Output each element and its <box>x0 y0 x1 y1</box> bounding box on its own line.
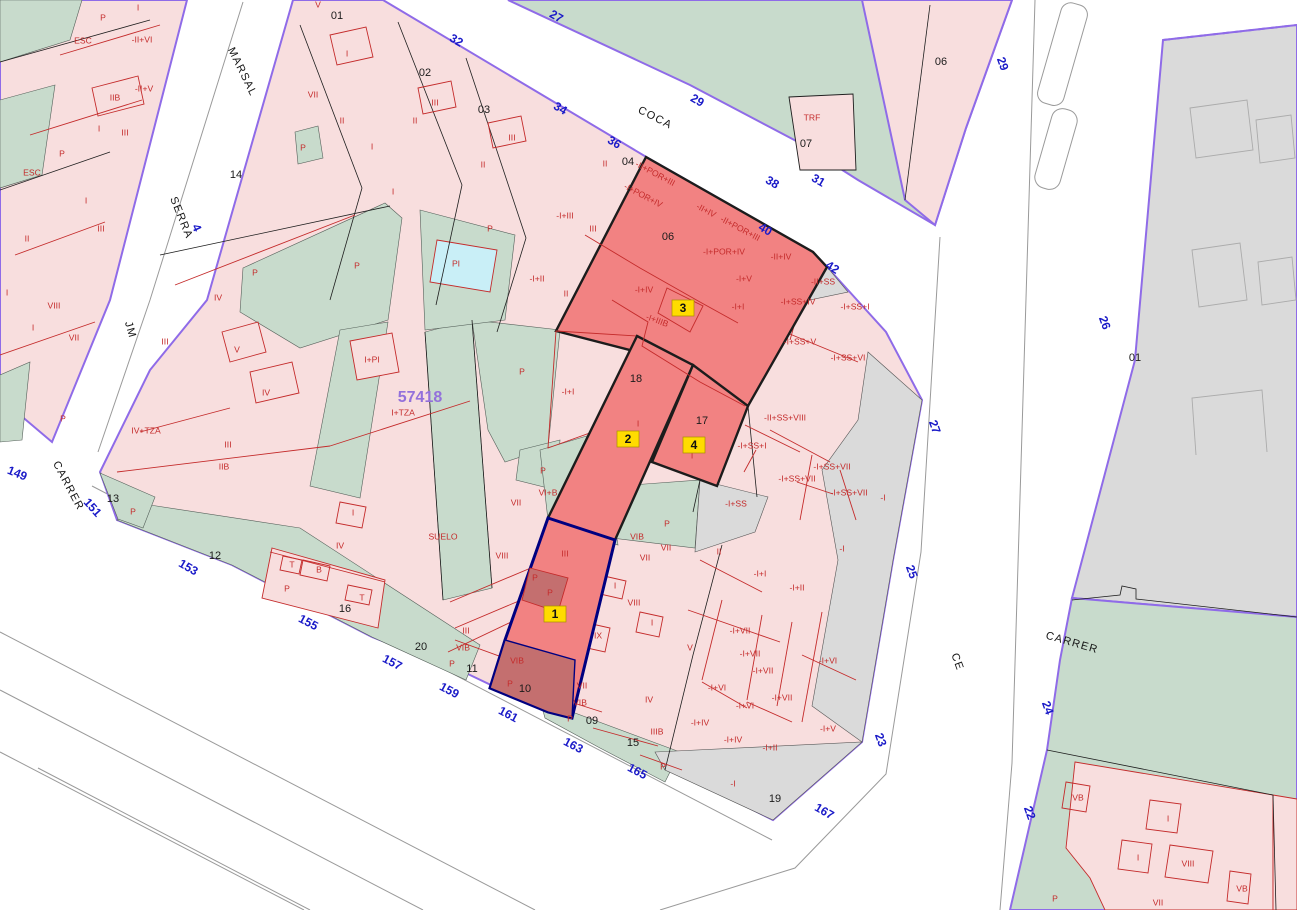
building-height-label: VIB <box>573 697 587 707</box>
building-height-label: -I+SS+IV <box>781 296 816 306</box>
building-height-label: I <box>392 186 394 196</box>
building-height-label: I <box>85 195 87 205</box>
building-height-label: -I+VII <box>730 625 751 635</box>
building-height-label: -I+SS <box>725 498 747 508</box>
building-height-label: -I+IV <box>724 734 743 744</box>
building-height-label: -I+SS+VII <box>813 461 850 471</box>
building-height-label: -I+VI <box>736 700 754 710</box>
building-height-label: P <box>507 678 513 688</box>
building-height-label: -I+I <box>562 386 575 396</box>
building-height-label: -I+III <box>556 210 573 220</box>
building-height-label: VII <box>640 552 651 562</box>
building-height-label: IV <box>645 694 653 704</box>
building-height-label: P <box>664 518 670 528</box>
parcel-number-label: 01 <box>1129 352 1141 364</box>
building-height-label: -I+I <box>732 301 745 311</box>
selection-badge-number: 4 <box>691 438 698 452</box>
building-height-label: III <box>589 223 596 233</box>
building-height-label: II <box>603 158 608 168</box>
building-height-label: VIB <box>630 531 644 541</box>
parcel-number-label: 20 <box>415 641 427 653</box>
special-label: I+TZA <box>391 407 415 417</box>
building-height-label: -I+VII <box>740 648 761 658</box>
parcel-number-label: 16 <box>339 603 351 615</box>
building-height-label: V <box>234 344 240 354</box>
building-height-label: -I+SS+I <box>840 301 869 311</box>
selection-badge-2[interactable]: 2 <box>617 431 639 447</box>
selection-badge-number: 2 <box>625 432 632 446</box>
building-height-label: -I+SS+VII <box>830 487 867 497</box>
building-height-label: P <box>59 148 65 158</box>
building-height-label: VIB <box>456 642 470 652</box>
selection-badge-1[interactable]: 1 <box>544 606 566 622</box>
building-height-label: P <box>300 142 306 152</box>
trf-parcel[interactable] <box>789 94 856 170</box>
building-height-label: -I+POR+IV <box>703 246 745 256</box>
parcel-number-label: 10 <box>519 683 531 695</box>
parcel-number-label: 04 <box>622 156 634 168</box>
parcel-number-label: 06 <box>662 231 674 243</box>
parcel-number-label: 14 <box>230 169 242 181</box>
cadastral-map-viewport: MARSALSERRAJMCARRERCOCACECARRER323436384… <box>0 0 1297 910</box>
building-height-label: -I+SS+VII <box>778 473 815 483</box>
building-height-label: -I+IV <box>635 284 654 294</box>
selection-badge-number: 3 <box>680 301 687 315</box>
building-height-label: -I+V <box>820 723 836 733</box>
building-height-label: -I+SS+VI <box>831 352 866 362</box>
building-height-label: III <box>224 439 231 449</box>
building-height-label: VII <box>577 680 588 690</box>
building-height-label: -I <box>880 492 885 502</box>
building-height-label: P <box>660 761 666 771</box>
building-height-label: III <box>508 132 515 142</box>
building-height-label: ESC <box>23 167 41 177</box>
building-height-label: I <box>32 322 34 332</box>
parcel-number-label: 11 <box>466 663 477 675</box>
building-height-label: -I+VII <box>772 692 793 702</box>
building-height-label: I <box>352 507 354 517</box>
building-height-label: P <box>60 413 66 423</box>
building-height-label: -I+VII <box>753 665 774 675</box>
building-height-label: I <box>6 287 8 297</box>
building-height-label: -I+IV <box>691 717 710 727</box>
map-reference-label: 57418 <box>398 389 443 406</box>
building-height-label: II <box>413 115 418 125</box>
building-height-label: -II+V <box>135 83 154 93</box>
building-height-label: IIB <box>110 92 121 102</box>
building-height-label: P <box>487 223 493 233</box>
building-height-label: P <box>252 267 258 277</box>
building-height-label: -I+SS+I <box>737 440 766 450</box>
building-height-label: IX <box>594 630 602 640</box>
building-height-label: VII <box>308 89 319 99</box>
building-height-label: III <box>161 336 168 346</box>
building-height-label: VIII <box>496 550 509 560</box>
building-height-label: VII <box>1153 897 1164 907</box>
building-height-label: -I+II <box>529 273 544 283</box>
building-height-label: VB <box>1072 792 1084 802</box>
building-height-label: -I+II <box>789 582 804 592</box>
building-height-label: -I+SS+V <box>784 336 817 346</box>
parcel-number-label: 12 <box>209 550 221 562</box>
building-height-label: II <box>481 159 486 169</box>
special-label: SUELO <box>428 531 457 541</box>
parcel-number-label: 15 <box>627 737 639 749</box>
building-height-label: III <box>431 97 438 107</box>
parcel-number-label: 01 <box>331 10 343 22</box>
building-height-label: I <box>371 141 373 151</box>
parcel-number-label: 03 <box>478 104 490 116</box>
building-height-label: -II+SS <box>811 276 835 286</box>
building-height-label: VIII <box>1182 858 1195 868</box>
building-height-label: -I+VI <box>819 655 837 665</box>
building-height-label: I <box>346 48 348 58</box>
building-height-label: -I+I <box>754 568 767 578</box>
building-height-label: I <box>1137 852 1139 862</box>
building-height-label: VB <box>1236 883 1248 893</box>
building-height-label: VIII <box>628 597 641 607</box>
building-height-label: I+PI <box>364 354 380 364</box>
building-height-label: ESC <box>74 35 92 45</box>
building-height-label: -II+VI <box>132 34 153 44</box>
building-height-label: V <box>687 642 693 652</box>
building-height-label: II <box>340 115 345 125</box>
building-height-label: -II+IV <box>771 251 792 261</box>
building-height-label: P <box>354 260 360 270</box>
building-height-label: P <box>532 572 538 582</box>
building-height-label: P <box>540 465 546 475</box>
building-height-label: I <box>98 123 100 133</box>
building-height-label: II <box>25 233 30 243</box>
building-height-label: -II+SS+VIII <box>764 412 806 422</box>
building-height-label: P <box>100 12 106 22</box>
building-height-label: III <box>561 548 568 558</box>
building-height-label: VIII <box>48 300 61 310</box>
building-height-label: VII <box>661 542 672 552</box>
building-height-label: B <box>316 564 322 574</box>
selection-badge-4[interactable]: 4 <box>683 437 705 453</box>
selection-badge-number: 1 <box>552 607 559 621</box>
parcel-number-label: 07 <box>800 138 812 150</box>
selection-badge-3[interactable]: 3 <box>672 300 694 316</box>
building-height-label: I <box>1167 813 1169 823</box>
building-height-label: -I <box>839 543 844 553</box>
building-height-label: III <box>462 625 469 635</box>
parcel-number-label: 13 <box>107 493 119 505</box>
building-height-label: P <box>519 366 525 376</box>
building-height-label: III <box>121 127 128 137</box>
building-height-label: IV <box>336 540 344 550</box>
building-height-label: IIB <box>219 461 230 471</box>
building-height-label: P <box>547 587 553 597</box>
cadastral-map-canvas: MARSALSERRAJMCARRERCOCACECARRER323436384… <box>0 0 1297 910</box>
building-height-label: II <box>717 546 722 556</box>
parcel-number-label: 18 <box>630 373 642 385</box>
parcel-number-label: 09 <box>586 715 598 727</box>
building-height-label: P <box>1052 893 1058 903</box>
building-height-label: P <box>449 658 455 668</box>
building-height-label: VI+B <box>539 487 558 497</box>
building-height-label: IIIB <box>651 726 664 736</box>
building-height-label: V <box>315 0 321 9</box>
parcel-number-label: 06 <box>935 56 947 68</box>
special-label: IV+TZA <box>131 425 161 435</box>
building-height-label: P <box>130 506 136 516</box>
building-height-label: T <box>289 559 295 569</box>
building-height-label: VII <box>69 332 80 342</box>
parcel-number-label: 19 <box>769 793 781 805</box>
special-label: TRF <box>804 112 821 122</box>
building-height-label: III <box>97 223 104 233</box>
building-height-label: II <box>564 288 569 298</box>
building-height-label: T <box>359 592 365 602</box>
building-height-label: VII <box>511 497 522 507</box>
building-height-label: I <box>637 418 639 428</box>
parcel-number-label: 02 <box>419 67 431 79</box>
building-height-label: -I+V <box>736 273 752 283</box>
building-height-label: -I <box>730 778 735 788</box>
building-height-label: IV <box>214 292 222 302</box>
building-height-label: -I+VI <box>708 682 726 692</box>
southeast-pink-parcel-2[interactable] <box>1273 795 1297 910</box>
building-height-label: I <box>614 580 616 590</box>
parcel-number-label: 17 <box>696 415 708 427</box>
building-height-label: P <box>567 713 573 723</box>
special-label: PI <box>452 258 460 268</box>
building-height-label: VIB <box>510 655 524 665</box>
building-height-label: IV <box>262 387 270 397</box>
building-height-label: P <box>284 583 290 593</box>
building-height-label: -I+II <box>762 742 777 752</box>
building-height-label: I <box>137 2 139 12</box>
building-height-label: I <box>651 617 653 627</box>
